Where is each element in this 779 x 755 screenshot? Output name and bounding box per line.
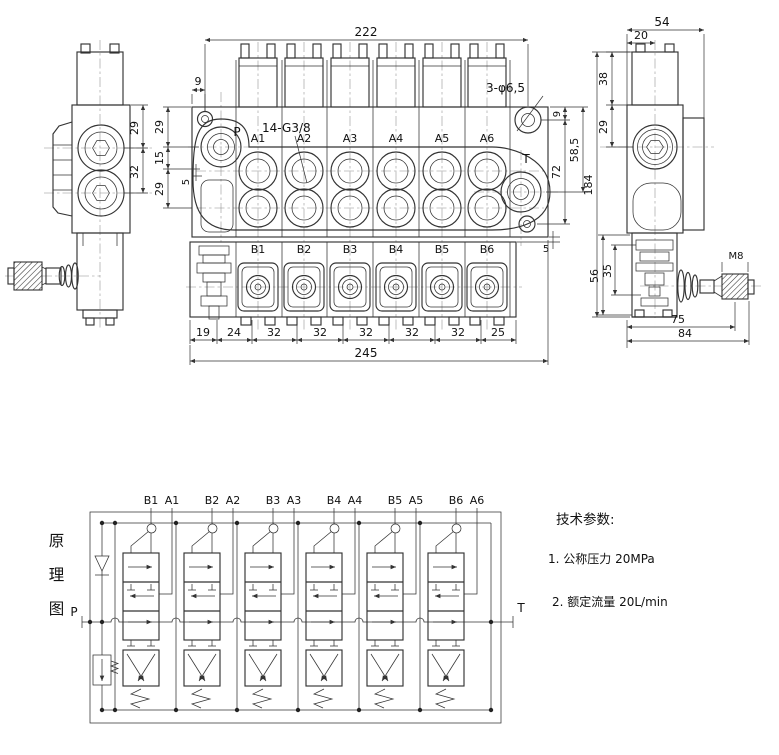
dim-54: 54 [654,15,669,29]
dim-19: 19 [196,326,210,339]
port-label-p: P [233,125,240,139]
sch-label-b1: B1 [144,494,159,507]
sch-label-a5: A5 [409,494,424,507]
dim-9-top-left: 9 [195,75,202,88]
port-label-b2: B2 [297,243,312,256]
port-label-a1: A1 [251,132,266,145]
schematic-section-1 [113,508,172,712]
dim-245: 245 [355,346,378,360]
dim-75: 75 [671,313,685,326]
schematic-section-3 [235,508,294,712]
sch-label-b3: B3 [266,494,281,507]
p-rail [82,618,513,622]
port-label-b6: B6 [480,243,495,256]
port-label-t: T [521,152,530,166]
sch-label-a6: A6 [470,494,485,507]
right-side-view: 54 20 38 29 56 35 M8 75 84 [588,15,764,348]
dim-32-3: 32 [359,326,373,339]
valve-engineering-drawing: 29 32 [0,0,779,755]
dim-38: 38 [597,72,610,86]
dim-9-right: 9 [552,111,563,117]
tech-params: 技术参数: 1. 公称压力 20MPa 2. 额定流量 20L/min [548,511,668,609]
schematic-section-4 [296,508,355,712]
tech-param-flow: 2. 额定流量 20L/min [552,594,668,609]
front-view: 222 9 29 15 29 5 9 72 58,5 184 5 [153,25,630,365]
drawing-svg: 29 32 [0,0,779,755]
dim-5-left: 5 [181,179,192,185]
dim-72: 72 [550,165,563,179]
schematic-port-p: P [70,605,77,619]
schematic-title-char-2: 理 [49,566,66,584]
relief-valve-icon [93,655,118,685]
dim-29-right-view: 29 [597,120,610,134]
dim-29-front-a: 29 [153,120,166,134]
callout-3-holes: 3-φ6,5 [486,81,525,95]
lever-ball-grip [722,274,748,299]
port-label-a4: A4 [389,132,404,145]
dim-32-5: 32 [451,326,465,339]
relief-adjuster-stack [197,246,231,319]
dim-56: 56 [588,269,601,283]
tech-params-title: 技术参数: [556,511,615,528]
port-label-a2: A2 [297,132,312,145]
port-label-b5: B5 [435,243,450,256]
sch-label-a3: A3 [287,494,302,507]
port-label-a5: A5 [435,132,450,145]
schematic-section-5 [357,508,416,712]
lever-ball-grip [14,262,42,290]
check-valve-icon [95,556,109,571]
dim-58-5: 58,5 [568,138,581,163]
tech-param-pressure: 1. 公称压力 20MPa [548,552,655,566]
port-label-b3: B3 [343,243,358,256]
hydraulic-schematic: 原 理 图 P T B1 A [49,494,526,723]
sch-label-b5: B5 [388,494,403,507]
dim-35: 35 [601,264,614,278]
dim-20: 20 [634,29,648,42]
schematic-title-char-3: 图 [49,600,66,618]
dim-29-front-b: 29 [153,182,166,196]
port-label-b1: B1 [251,243,266,256]
sch-label-a1: A1 [165,494,180,507]
sch-label-b6: B6 [449,494,464,507]
dim-32-1: 32 [267,326,281,339]
dim-32-left-view: 32 [128,165,141,179]
sch-label-a4: A4 [348,494,363,507]
port-label-b4: B4 [389,243,404,256]
port-label-a3: A3 [343,132,358,145]
dim-222: 222 [355,25,378,39]
schematic-section-2 [174,508,233,712]
thread-m8: M8 [729,251,744,262]
dim-24: 24 [227,326,241,339]
schematic-port-t: T [516,601,525,615]
dim-25: 25 [491,326,505,339]
dim-29-left-view: 29 [128,121,141,135]
sch-label-b2: B2 [205,494,220,507]
dim-184: 184 [582,175,595,196]
schematic-title-char-1: 原 [49,532,66,550]
dim-32-4: 32 [405,326,419,339]
left-side-view: 29 32 [5,40,152,330]
port-label-a6: A6 [480,132,495,145]
dim-84: 84 [678,327,692,340]
dim-15-front: 15 [153,151,166,165]
dim-32-2: 32 [313,326,327,339]
sch-label-a2: A2 [226,494,241,507]
schematic-section-6 [418,508,477,712]
sch-label-b4: B4 [327,494,342,507]
